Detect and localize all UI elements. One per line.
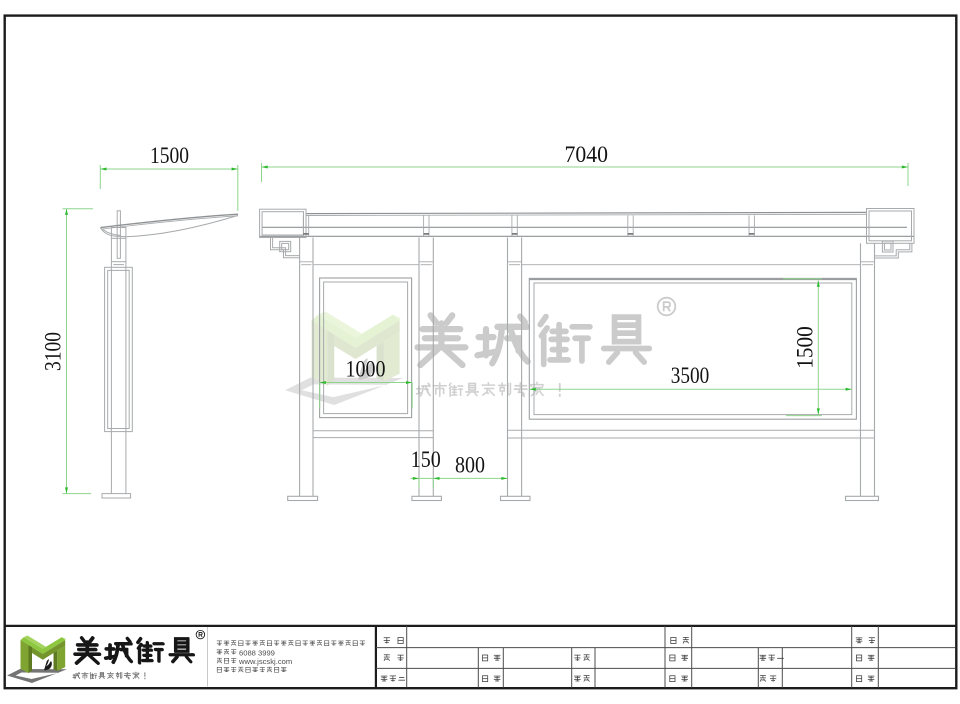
svg-text:7040: 7040 [565,142,609,168]
svg-text:1000: 1000 [346,357,386,383]
svg-text:150: 150 [411,447,441,473]
svg-text:1500: 1500 [793,326,819,369]
svg-text:3100: 3100 [41,332,67,371]
svg-text:3500: 3500 [671,363,710,389]
svg-text:www.jscskj.com: www.jscskj.com [238,657,292,666]
svg-text:800: 800 [455,453,485,479]
svg-text:1500: 1500 [150,143,189,169]
svg-text:6088 3999: 6088 3999 [239,648,275,657]
